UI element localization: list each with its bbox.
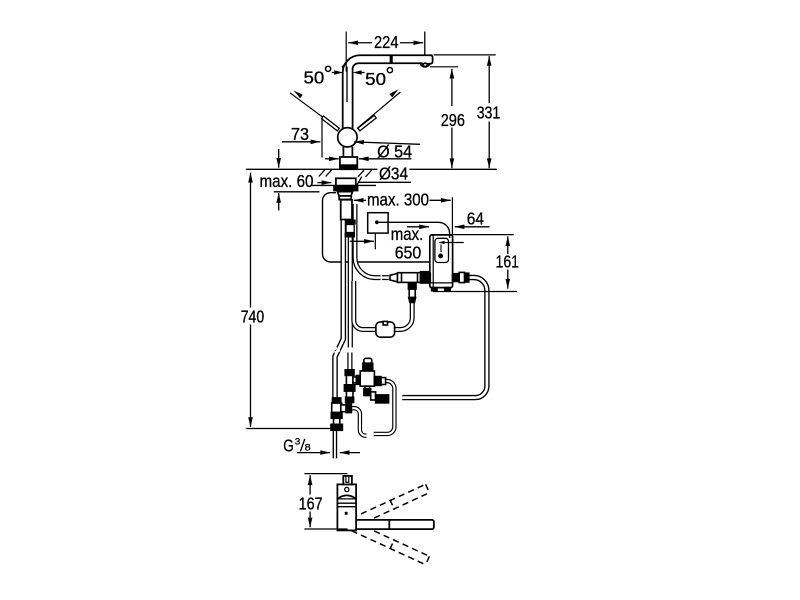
- svg-text:740: 740: [241, 307, 265, 327]
- svg-text:331: 331: [477, 103, 501, 123]
- svg-text:G: G: [283, 436, 294, 456]
- svg-text:650: 650: [395, 242, 422, 262]
- svg-text:50: 50: [304, 68, 325, 88]
- svg-text:296: 296: [441, 110, 465, 130]
- svg-text:3: 3: [295, 436, 300, 447]
- svg-text:161: 161: [496, 251, 520, 271]
- svg-text:Ø34: Ø34: [379, 164, 408, 184]
- svg-text:50: 50: [365, 69, 386, 89]
- svg-text:224: 224: [374, 32, 399, 52]
- svg-text:Ø 54: Ø 54: [377, 141, 412, 161]
- svg-text:8: 8: [305, 443, 311, 454]
- svg-text:max. 60: max. 60: [260, 171, 314, 191]
- svg-text:max. 300: max. 300: [367, 190, 429, 210]
- svg-text:64: 64: [467, 208, 484, 228]
- svg-text:167: 167: [299, 493, 323, 513]
- svg-text:73: 73: [291, 124, 309, 144]
- svg-text:max.: max.: [391, 224, 424, 244]
